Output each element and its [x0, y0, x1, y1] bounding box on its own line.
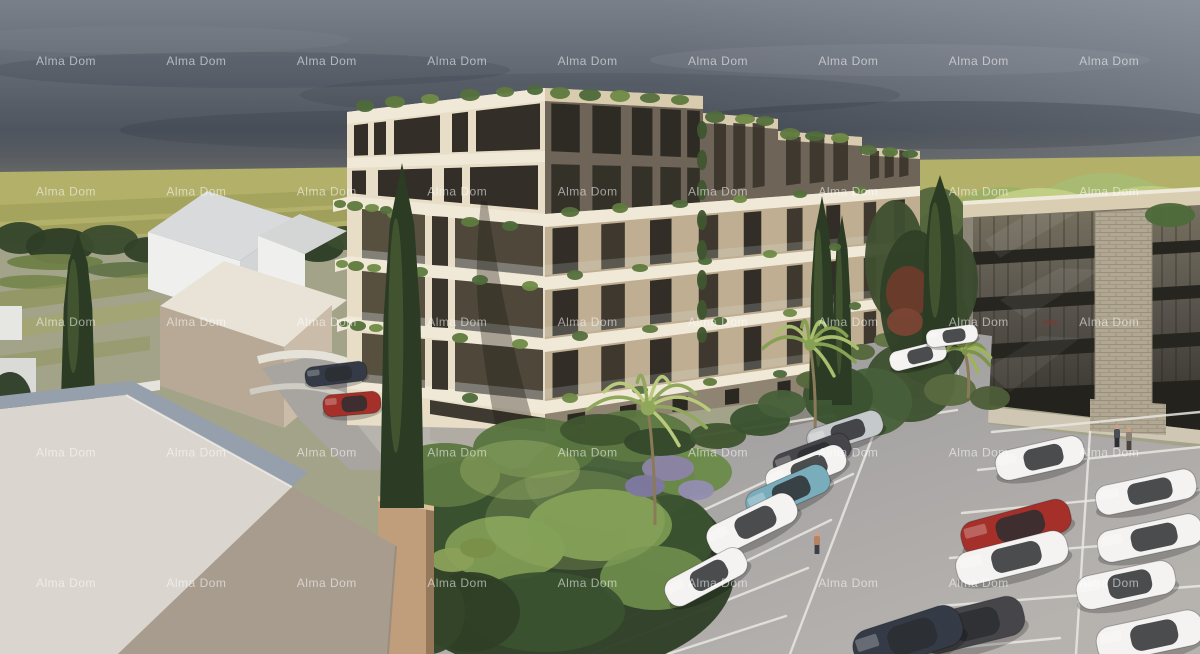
tree-blob [859, 145, 877, 155]
tree-blob [642, 325, 658, 333]
tree-blob [902, 150, 918, 158]
watermark-text: Alma Dom [1079, 446, 1139, 460]
tree-blob [697, 150, 707, 170]
tree-blob [421, 94, 439, 104]
watermark-text: Alma Dom [297, 185, 357, 199]
tree-blob [632, 264, 648, 272]
tree-blob [512, 339, 528, 349]
watermark-text: Alma Dom [949, 185, 1009, 199]
person [814, 531, 820, 554]
watermark-text: Alma Dom [688, 54, 748, 68]
scene-svg: Alma DomAlma DomAlma DomAlma DomAlma Dom… [0, 0, 1200, 654]
person-torso [1114, 429, 1120, 439]
watermark-text: Alma Dom [818, 315, 878, 329]
watermark-text: Alma Dom [688, 576, 748, 590]
tree-blob [472, 275, 488, 285]
window [354, 124, 368, 156]
watermark-text: Alma Dom [818, 185, 878, 199]
watermark-text: Alma Dom [1079, 54, 1139, 68]
tree-blob [624, 428, 696, 456]
tree-blob [829, 243, 841, 251]
door [725, 388, 739, 405]
cypress-highlight [836, 245, 843, 374]
tree-blob [672, 200, 688, 208]
tree-blob [773, 370, 787, 378]
tree-blob [572, 331, 588, 341]
window [660, 167, 681, 205]
tree-blob [452, 333, 468, 343]
watermark-text: Alma Dom [818, 576, 878, 590]
window [632, 107, 653, 155]
watermark-text: Alma Dom [427, 54, 487, 68]
watermark-text: Alma Dom [427, 446, 487, 460]
tree-blob [1145, 203, 1195, 227]
watermark-text: Alma Dom [297, 54, 357, 68]
window [432, 340, 448, 390]
watermark-text: Alma Dom [558, 576, 618, 590]
tree-blob [460, 89, 480, 101]
tree-blob [697, 270, 707, 290]
watermark-text: Alma Dom [297, 446, 357, 460]
window [592, 105, 620, 154]
window [394, 115, 440, 154]
tree-blob [763, 250, 777, 258]
window [632, 166, 653, 207]
tree-blob [579, 89, 601, 101]
tree-blob [462, 393, 478, 403]
watermark-text: Alma Dom [1079, 185, 1139, 199]
watermark-text: Alma Dom [36, 185, 96, 199]
glass-red-reflection [1043, 320, 1057, 325]
tree-blob [460, 538, 496, 558]
tree-blob [697, 210, 707, 230]
watermark-text: Alma Dom [36, 446, 96, 460]
watermark-text: Alma Dom [949, 576, 1009, 590]
tree-blob [562, 393, 578, 403]
watermark-text: Alma Dom [558, 315, 618, 329]
tree-blob [348, 261, 364, 271]
palm-crown [641, 401, 656, 416]
window [753, 123, 765, 188]
tree-blob [380, 206, 392, 214]
window [733, 123, 745, 189]
person-legs [815, 545, 820, 554]
watermark-text: Alma Dom [166, 446, 226, 460]
tree-blob [610, 90, 630, 102]
tree-blob [625, 475, 665, 497]
watermark-text: Alma Dom [1079, 315, 1139, 329]
tree-blob [522, 281, 538, 291]
tree-blob [970, 386, 1010, 410]
watermark-text: Alma Dom [949, 446, 1009, 460]
watermark-text: Alma Dom [166, 185, 226, 199]
tree-blob [735, 114, 755, 124]
tree-blob [561, 207, 579, 217]
tree-blob [697, 327, 707, 343]
cypress-highlight [929, 202, 941, 318]
person-head [1114, 424, 1119, 429]
tree-blob [831, 133, 849, 143]
watermark-text: Alma Dom [297, 315, 357, 329]
tree-blob [612, 203, 628, 213]
tree-blob [671, 95, 689, 105]
watermark-text: Alma Dom [427, 185, 487, 199]
tree-blob [783, 309, 797, 317]
window [810, 136, 825, 184]
watermark-text: Alma Dom [36, 54, 96, 68]
palm-crown [804, 339, 816, 351]
window [660, 109, 681, 157]
tree-blob [882, 147, 898, 157]
tree-blob [496, 87, 514, 97]
tree-blob [367, 264, 381, 272]
tree-blob [567, 270, 583, 280]
tree-blob [640, 93, 660, 103]
window [452, 112, 468, 153]
tree-blob [678, 480, 714, 500]
watermark-text: Alma Dom [688, 446, 748, 460]
person-torso [814, 536, 820, 546]
watermark-text: Alma Dom [427, 315, 487, 329]
window [432, 216, 448, 266]
watermark-text: Alma Dom [558, 185, 618, 199]
tree-blob [347, 201, 363, 211]
watermark-text: Alma Dom [36, 315, 96, 329]
watermark-text: Alma Dom [1079, 576, 1139, 590]
tree-blob [385, 96, 405, 108]
watermark-text: Alma Dom [558, 54, 618, 68]
tree-blob [758, 390, 806, 418]
person [1114, 424, 1120, 447]
tree-blob [705, 111, 725, 123]
tree-blob [887, 308, 923, 336]
tree-blob [369, 324, 383, 332]
tree-blob [703, 378, 717, 386]
tree-blob [793, 190, 807, 198]
tree-blob [502, 221, 518, 231]
watermark-text: Alma Dom [949, 315, 1009, 329]
palm-crown [962, 349, 968, 355]
tree-blob [550, 87, 570, 99]
watermark-text: Alma Dom [36, 576, 96, 590]
tree-blob [805, 131, 825, 141]
watermark-text: Alma Dom [818, 446, 878, 460]
tree-blob [461, 217, 479, 227]
window [551, 103, 579, 152]
tree-blob [780, 128, 800, 140]
watermark-text: Alma Dom [558, 446, 618, 460]
person-torso [1126, 432, 1132, 442]
tree-blob [334, 200, 346, 208]
watermark-text: Alma Dom [166, 576, 226, 590]
tree-blob [697, 121, 707, 139]
tree-blob [365, 204, 379, 212]
watermark-text: Alma Dom [818, 54, 878, 68]
car-highlight [325, 398, 337, 406]
tree-blob [849, 302, 861, 310]
window [786, 136, 801, 185]
window [476, 103, 540, 151]
tree-blob [756, 116, 774, 126]
window [374, 121, 386, 155]
window [714, 123, 726, 191]
watermark-text: Alma Dom [949, 54, 1009, 68]
watermark-text: Alma Dom [427, 576, 487, 590]
watermark-text: Alma Dom [166, 54, 226, 68]
car-glass [341, 395, 368, 413]
house-block [0, 306, 22, 340]
tree-blob [356, 100, 374, 112]
tree-blob [527, 85, 543, 95]
watermark-text: Alma Dom [688, 315, 748, 329]
tree-blob [697, 240, 707, 260]
watermark-text: Alma Dom [688, 185, 748, 199]
tree-blob [336, 260, 348, 268]
person-head [1126, 427, 1131, 432]
rendering-canvas: Alma DomAlma DomAlma DomAlma DomAlma Dom… [0, 0, 1200, 654]
cypress-highlight [388, 218, 403, 453]
watermark-text: Alma Dom [166, 315, 226, 329]
person-head [814, 531, 819, 536]
watermark-text: Alma Dom [297, 576, 357, 590]
